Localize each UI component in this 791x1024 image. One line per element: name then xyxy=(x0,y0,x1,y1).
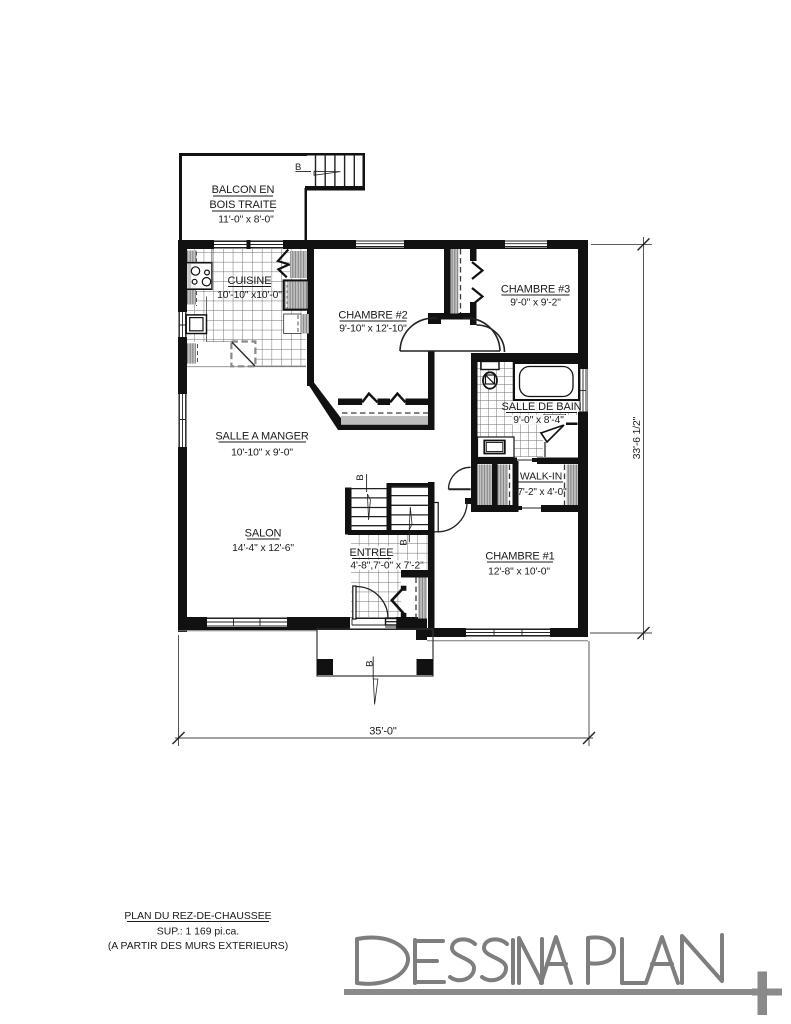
svg-text:33'-6 1/2": 33'-6 1/2" xyxy=(632,416,643,459)
svg-text:10'-10" x 9'-0": 10'-10" x 9'-0" xyxy=(231,448,293,459)
svg-text:11'-0" x 8'-0": 11'-0" x 8'-0" xyxy=(218,215,274,226)
svg-text:ENTREE: ENTREE xyxy=(349,547,393,559)
svg-text:9'-10" x 12'-10": 9'-10" x 12'-10" xyxy=(339,324,407,335)
svg-text:B: B xyxy=(355,474,366,480)
svg-text:B: B xyxy=(399,539,410,545)
svg-text:SUP.: 1 169 pi.ca.: SUP.: 1 169 pi.ca. xyxy=(157,927,239,938)
svg-text:BALCON EN: BALCON EN xyxy=(212,184,275,196)
svg-text:14'-4" x 12'-6": 14'-4" x 12'-6" xyxy=(232,543,294,554)
svg-text:7'-2" x 4'-0": 7'-2" x 4'-0" xyxy=(517,487,567,498)
svg-text:4'-8",7'-0" x 7'-2": 4'-8",7'-0" x 7'-2" xyxy=(350,561,424,572)
svg-text:9'-0" x 9'-2": 9'-0" x 9'-2" xyxy=(510,298,561,309)
svg-text:WALK-IN: WALK-IN xyxy=(520,472,562,483)
svg-text:12'-8" x 10'-0": 12'-8" x 10'-0" xyxy=(488,567,550,578)
svg-text:(A PARTIR DES MURS EXTERIEURS): (A PARTIR DES MURS EXTERIEURS) xyxy=(108,941,288,952)
svg-text:CUISINE: CUISINE xyxy=(228,275,272,287)
svg-text:35'-0": 35'-0" xyxy=(369,726,397,738)
svg-text:PLAN DU REZ-DE-CHAUSSEE: PLAN DU REZ-DE-CHAUSSEE xyxy=(124,911,271,922)
svg-text:10'-10" x10'-0": 10'-10" x10'-0" xyxy=(217,290,282,301)
svg-text:SALLE A MANGER: SALLE A MANGER xyxy=(215,431,309,443)
svg-text:9'-0" x 8'-4": 9'-0" x 8'-4" xyxy=(513,415,564,426)
svg-text:SALLE DE BAIN: SALLE DE BAIN xyxy=(501,401,581,413)
svg-text:CHAMBRE #1: CHAMBRE #1 xyxy=(485,551,554,563)
svg-text:SALON: SALON xyxy=(245,528,282,540)
svg-text:CHAMBRE #2: CHAMBRE #2 xyxy=(338,310,407,322)
svg-text:BOIS TRAITE: BOIS TRAITE xyxy=(209,199,276,211)
svg-text:CHAMBRE #3: CHAMBRE #3 xyxy=(501,284,570,296)
